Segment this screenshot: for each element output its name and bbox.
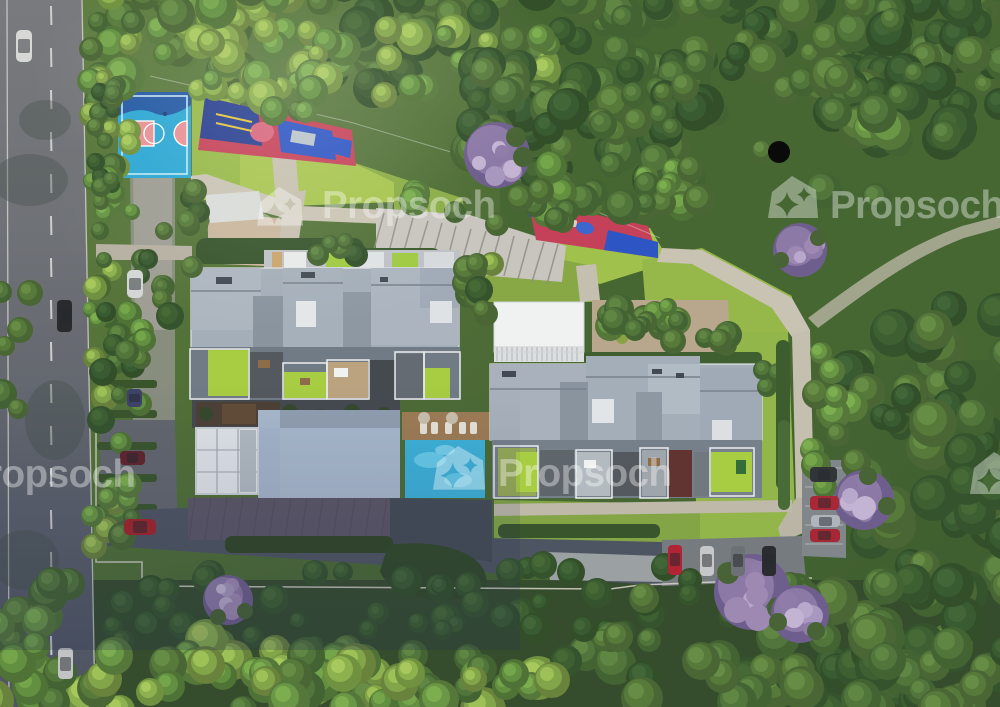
svg-text:Propsoch: Propsoch <box>322 184 496 227</box>
svg-text:Propsoch: Propsoch <box>498 452 672 495</box>
svg-text:Propsoch: Propsoch <box>830 184 1000 227</box>
svg-text:Propsoch: Propsoch <box>0 453 136 496</box>
